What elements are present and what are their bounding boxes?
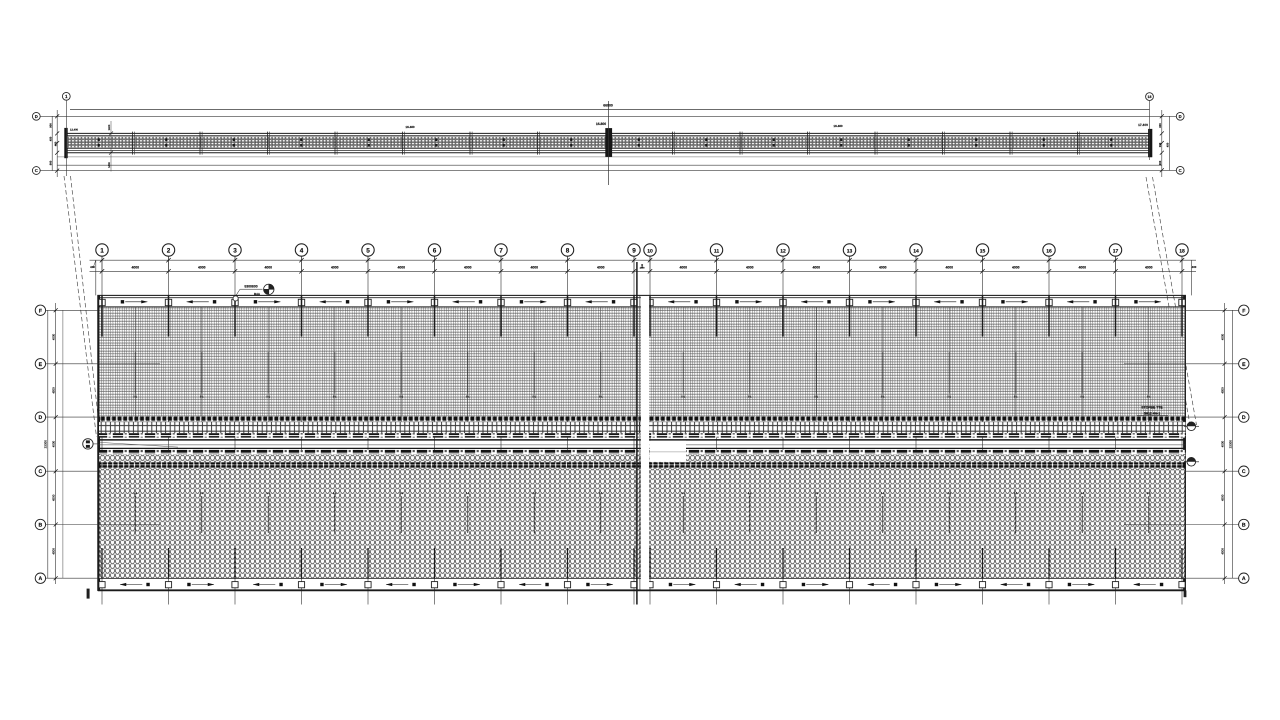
svg-text:900: 900: [49, 123, 52, 128]
svg-text:5-1: 5-1: [748, 396, 752, 399]
svg-text:11: 11: [714, 248, 720, 254]
svg-text:450: 450: [54, 141, 57, 146]
svg-text:1-1: 1-1: [1014, 492, 1018, 495]
svg-text:23300: 23300: [44, 440, 48, 449]
svg-text:2: 2: [167, 247, 171, 254]
svg-text:F: F: [1242, 308, 1245, 314]
svg-text:1-1: 1-1: [266, 492, 270, 495]
svg-text:14: 14: [913, 248, 919, 254]
svg-text:4000: 4000: [530, 265, 538, 269]
svg-text:16.480: 16.480: [833, 124, 843, 128]
svg-text:4500: 4500: [52, 441, 56, 448]
svg-text:C: C: [39, 469, 43, 475]
svg-text:4000: 4000: [331, 265, 339, 269]
svg-text:B: B: [39, 523, 43, 529]
svg-text:5-1: 5-1: [681, 396, 685, 399]
svg-text:400: 400: [1192, 265, 1197, 269]
svg-text:4500: 4500: [52, 548, 56, 555]
svg-text:4000: 4000: [198, 265, 206, 269]
svg-text:16.800: 16.800: [596, 122, 606, 126]
svg-text:1: 1: [65, 94, 68, 99]
svg-text:900: 900: [1159, 123, 1162, 128]
svg-text:1-1: 1-1: [532, 492, 536, 495]
svg-text:150: 150: [1159, 142, 1162, 147]
svg-text:23300: 23300: [1229, 440, 1233, 449]
svg-text:4500: 4500: [52, 494, 56, 501]
svg-text:4500: 4500: [1221, 494, 1225, 501]
svg-text:5-1: 5-1: [200, 396, 204, 399]
svg-text:5M12 4%-1: 5M12 4%-1: [1144, 411, 1161, 415]
svg-text:13: 13: [847, 248, 853, 254]
svg-text:1-1: 1-1: [133, 492, 137, 495]
svg-text:12: 12: [780, 248, 786, 254]
svg-text:900: 900: [49, 160, 52, 165]
svg-text:C: C: [35, 168, 38, 173]
svg-text:12.400: 12.400: [70, 129, 78, 132]
svg-text:F: F: [39, 308, 42, 314]
svg-text:450: 450: [1167, 142, 1170, 147]
svg-text:C: C: [1242, 469, 1246, 475]
svg-text:B4A: B4A: [254, 292, 261, 296]
svg-text:5: 5: [366, 247, 370, 254]
svg-text:1-1: 1-1: [333, 492, 337, 495]
svg-text:5300800: 5300800: [244, 285, 257, 289]
svg-text:5-1: 5-1: [1147, 396, 1151, 399]
svg-text:1-1: 1-1: [881, 492, 885, 495]
svg-text:66000: 66000: [603, 104, 613, 108]
svg-text:4500: 4500: [1221, 333, 1225, 340]
svg-text:9: 9: [632, 247, 636, 254]
svg-text:6: 6: [433, 247, 437, 254]
svg-text:5-1: 5-1: [599, 396, 603, 399]
svg-text:4: 4: [300, 247, 304, 254]
svg-text:15: 15: [980, 248, 986, 254]
svg-text:4000: 4000: [945, 265, 953, 269]
svg-text:5-1: 5-1: [1014, 396, 1018, 399]
svg-text:1000: 1000: [640, 266, 646, 269]
svg-text:4000: 4000: [131, 265, 139, 269]
svg-text:5-1: 5-1: [947, 396, 951, 399]
svg-text:5-1: 5-1: [333, 396, 337, 399]
svg-text:E: E: [1242, 362, 1246, 368]
svg-text:7: 7: [499, 247, 503, 254]
svg-text:1-1: 1-1: [200, 492, 204, 495]
svg-text:1-1: 1-1: [1080, 492, 1084, 495]
svg-text:4500: 4500: [52, 333, 56, 340]
svg-text:1-1: 1-1: [947, 492, 951, 495]
svg-text:1-1: 1-1: [681, 492, 685, 495]
svg-text:E: E: [39, 362, 43, 368]
svg-text:16: 16: [1046, 248, 1052, 254]
svg-text:4000: 4000: [397, 265, 405, 269]
svg-text:1-1: 1-1: [748, 492, 752, 495]
svg-text:5-1: 5-1: [881, 396, 885, 399]
svg-text:1-1: 1-1: [1147, 492, 1151, 495]
svg-text:4000: 4000: [746, 265, 754, 269]
svg-text:5-1: 5-1: [466, 396, 470, 399]
svg-text:1400: 1400: [108, 124, 111, 130]
svg-text:1-1: 1-1: [466, 492, 470, 495]
svg-text:4500: 4500: [1221, 548, 1225, 555]
svg-text:4000: 4000: [464, 265, 472, 269]
svg-text:5-1: 5-1: [266, 396, 270, 399]
svg-text:10: 10: [647, 248, 653, 254]
svg-text:1-1: 1-1: [599, 492, 603, 495]
svg-text:5-1: 5-1: [814, 396, 818, 399]
svg-text:D: D: [39, 415, 43, 421]
svg-text:400: 400: [90, 265, 95, 269]
svg-text:450: 450: [49, 136, 52, 141]
svg-text:D: D: [1242, 415, 1246, 421]
svg-text:D: D: [35, 114, 38, 119]
svg-text:18: 18: [1148, 95, 1152, 99]
svg-text:B: B: [1242, 523, 1246, 529]
svg-text:17.400: 17.400: [1138, 123, 1148, 127]
svg-text:900: 900: [1159, 160, 1162, 165]
svg-text:4000: 4000: [679, 265, 687, 269]
svg-text:4000: 4000: [597, 265, 605, 269]
svg-text:STOPBE TTE: STOPBE TTE: [1141, 405, 1163, 409]
svg-text:8: 8: [566, 247, 570, 254]
svg-text:4000: 4000: [1012, 265, 1020, 269]
svg-text:4500: 4500: [1221, 387, 1225, 394]
svg-text:1-1: 1-1: [399, 492, 403, 495]
svg-text:5-1: 5-1: [532, 396, 536, 399]
svg-text:1-1: 1-1: [814, 492, 818, 495]
svg-text:5-1: 5-1: [1080, 396, 1084, 399]
svg-text:17: 17: [1113, 248, 1119, 254]
svg-text:3: 3: [233, 247, 237, 254]
svg-text:5-1: 5-1: [133, 396, 137, 399]
svg-text:1400: 1400: [108, 162, 111, 168]
svg-text:4000: 4000: [1078, 265, 1086, 269]
svg-text:4000: 4000: [264, 265, 272, 269]
svg-text:4500: 4500: [1221, 441, 1225, 448]
svg-text:D: D: [1179, 114, 1182, 119]
svg-text:1: 1: [100, 247, 104, 254]
svg-text:4500: 4500: [52, 387, 56, 394]
svg-text:4000: 4000: [1145, 265, 1153, 269]
svg-text:A: A: [1242, 576, 1246, 582]
svg-text:18: 18: [1179, 248, 1185, 254]
svg-text:A: A: [39, 576, 43, 582]
svg-text:5-1: 5-1: [399, 396, 403, 399]
svg-text:4000: 4000: [812, 265, 820, 269]
svg-text:16.480: 16.480: [405, 125, 415, 129]
svg-text:4000: 4000: [879, 265, 887, 269]
svg-text:C: C: [1179, 168, 1182, 173]
